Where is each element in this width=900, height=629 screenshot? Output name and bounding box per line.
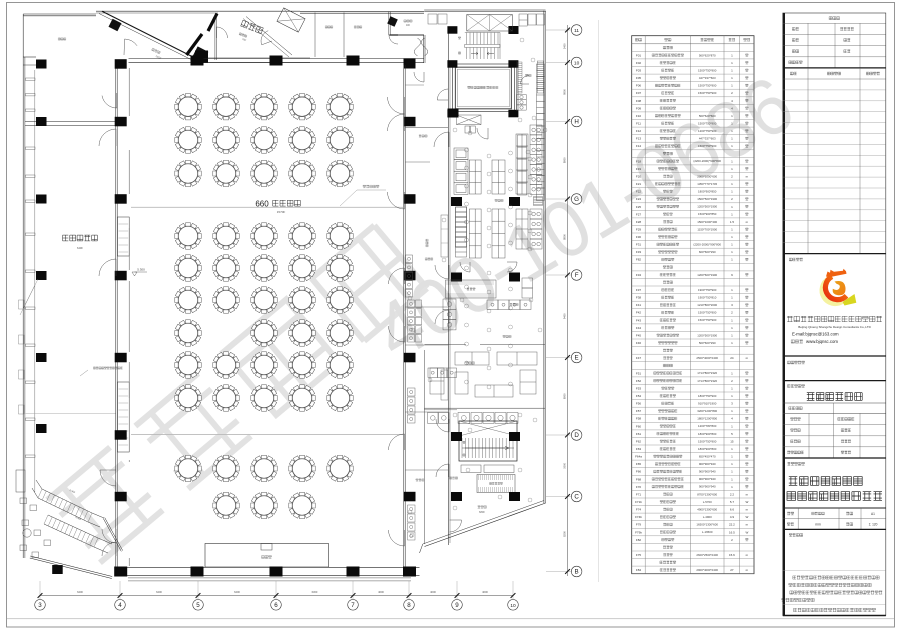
svg-text:1500*750*900: 1500*750*900	[698, 84, 717, 88]
svg-text:Beijing Qineng Shangchu Design: Beijing Qineng Shangchu Design Consultan…	[798, 325, 871, 329]
svg-text:F12: F12	[636, 129, 642, 133]
svg-text:9400: 9400	[562, 313, 566, 319]
svg-text:4600: 4600	[378, 590, 384, 594]
svg-text:F66: F66	[636, 470, 642, 474]
svg-text:910*910*1900: 910*910*1900	[698, 402, 717, 406]
svg-text:(2200-2000)*900*800: (2200-2000)*900*800	[693, 243, 721, 247]
svg-text:500*600*290: 500*600*290	[699, 341, 716, 345]
svg-text:F61: F61	[636, 432, 642, 436]
svg-text:F05: F05	[636, 76, 642, 80]
svg-text:F03: F03	[636, 69, 642, 73]
svg-text:F52: F52	[636, 379, 642, 383]
svg-text:F79b: F79b	[635, 530, 642, 534]
svg-text:A1: A1	[871, 512, 875, 516]
svg-text:F51: F51	[636, 371, 642, 375]
svg-text:4: 4	[118, 602, 122, 609]
svg-text:7: 7	[351, 602, 355, 609]
svg-text:F20: F20	[636, 175, 642, 179]
svg-text:F54: F54	[636, 394, 642, 398]
svg-text:1714*800*2320: 1714*800*2320	[697, 371, 717, 375]
svg-text:F75: F75	[636, 553, 642, 557]
svg-text:F47: F47	[636, 356, 642, 360]
svg-text:F63: F63	[636, 447, 642, 451]
svg-text:1800*900*800: 1800*900*800	[698, 447, 717, 451]
svg-text:G: G	[574, 196, 579, 203]
svg-text:6400: 6400	[234, 590, 240, 594]
svg-text:F62: F62	[636, 439, 642, 443]
svg-text:F19: F19	[636, 167, 642, 171]
svg-text:3: 3	[38, 602, 42, 609]
svg-text:560*620*600: 560*620*600	[699, 114, 716, 118]
svg-text:6400: 6400	[156, 590, 162, 594]
svg-text:D: D	[574, 432, 579, 439]
svg-text:F65: F65	[636, 462, 642, 466]
svg-text:1800*1200*800: 1800*1200*800	[697, 417, 717, 421]
svg-text:F43: F43	[636, 318, 642, 322]
svg-text:H: H	[574, 119, 578, 126]
svg-text:8200: 8200	[563, 531, 567, 537]
svg-text:15: 15	[730, 439, 734, 443]
svg-text:L-4900: L-4900	[703, 515, 712, 519]
svg-text:5: 5	[196, 602, 200, 609]
svg-text:1500*750*900: 1500*750*900	[698, 311, 717, 315]
svg-text:5.7: 5.7	[730, 500, 735, 504]
svg-text:6400: 6400	[77, 590, 83, 594]
svg-text:F22: F22	[636, 190, 642, 194]
svg-text:2000*1000*600: 2000*1000*600	[697, 174, 717, 178]
svg-text:1500*750*900: 1500*750*900	[698, 121, 717, 125]
svg-text:1900*750*810: 1900*750*810	[698, 296, 717, 300]
svg-text:F46: F46	[636, 341, 642, 345]
svg-text:1500*900*850: 1500*900*850	[698, 212, 717, 216]
svg-text:F82: F82	[636, 258, 642, 262]
svg-text:F57: F57	[636, 409, 642, 413]
svg-text:F06: F06	[636, 84, 642, 88]
svg-text:F37: F37	[636, 288, 642, 292]
svg-text:3200*1200*800: 3200*1200*800	[697, 409, 717, 413]
svg-text:900*900*940: 900*900*940	[699, 477, 716, 481]
svg-text:5000: 5000	[563, 462, 567, 468]
svg-text:640F: 640F	[77, 246, 83, 250]
svg-text:F70: F70	[636, 485, 642, 489]
svg-text:1200*500*1900: 1200*500*1900	[697, 205, 717, 209]
svg-text:9: 9	[455, 602, 459, 609]
svg-text:F13: F13	[636, 137, 642, 141]
svg-text:E-mail:bjqnsc@163.com: E-mail:bjqnsc@163.com	[792, 332, 839, 337]
svg-text:mm: mm	[815, 523, 821, 527]
svg-text:F07: F07	[636, 91, 642, 95]
svg-text:F27: F27	[636, 212, 642, 216]
svg-text:F24: F24	[636, 197, 642, 201]
svg-text:1500*500*1900: 1500*500*1900	[697, 197, 717, 201]
svg-text:F41: F41	[636, 303, 642, 307]
svg-text:F74b: F74b	[635, 515, 642, 519]
svg-text:1.5: 1.5	[730, 220, 735, 224]
svg-text:F25: F25	[636, 205, 642, 209]
svg-text:W: W	[745, 515, 748, 519]
svg-text:1500*750*900: 1500*750*900	[698, 439, 717, 443]
svg-text:F30: F30	[636, 235, 642, 239]
svg-text:1500*750*900: 1500*750*900	[698, 68, 717, 72]
svg-text:4.9: 4.9	[730, 515, 735, 519]
svg-text:F38: F38	[636, 296, 642, 300]
svg-text:1210*800*2000: 1210*800*2000	[697, 303, 717, 307]
svg-text:8800: 8800	[563, 234, 567, 240]
svg-text:447*337*603: 447*337*603	[699, 137, 716, 141]
svg-text:4600: 4600	[482, 590, 488, 594]
svg-text:W: W	[745, 530, 748, 534]
svg-text:F60: F60	[636, 424, 642, 428]
svg-text:F: F	[575, 272, 579, 279]
svg-text:F84: F84	[636, 568, 642, 572]
svg-text:9800: 9800	[563, 89, 567, 95]
svg-text:F31: F31	[636, 243, 642, 247]
svg-text:15.6: 15.6	[729, 553, 735, 557]
svg-text:22.2: 22.2	[729, 523, 735, 527]
svg-text:2900*4000*2400: 2900*4000*2400	[696, 568, 718, 572]
svg-text:F56: F56	[636, 402, 642, 406]
svg-text:F10: F10	[636, 114, 642, 118]
svg-text:16500*1300*600: 16500*1300*600	[696, 523, 718, 527]
svg-text:4000: 4000	[430, 590, 436, 594]
svg-text:650*450*470: 650*450*470	[699, 455, 716, 459]
svg-text:F68: F68	[636, 477, 642, 481]
svg-text:F29: F29	[636, 228, 642, 232]
svg-text:16.5: 16.5	[729, 530, 735, 534]
svg-text:F53: F53	[636, 386, 642, 390]
svg-text:6.6: 6.6	[730, 508, 735, 512]
svg-text:1200*600*1900: 1200*600*1900	[697, 273, 717, 277]
svg-text:2500*4000*2400: 2500*4000*2400	[696, 356, 718, 360]
svg-text:24: 24	[730, 356, 734, 360]
svg-text:1714*800*2320: 1714*800*2320	[697, 379, 717, 383]
svg-text:W: W	[745, 500, 748, 504]
svg-text:27: 27	[730, 568, 734, 572]
svg-text:C: C	[574, 494, 579, 501]
svg-text:1: 120: 1: 120	[869, 523, 878, 527]
svg-text:1500*750*900: 1500*750*900	[698, 318, 717, 322]
svg-text:F82: F82	[636, 538, 642, 542]
svg-text:1500*750*900: 1500*750*900	[698, 91, 717, 95]
svg-text:F34: F34	[636, 273, 642, 277]
svg-text:F71: F71	[636, 492, 642, 496]
svg-text:10: 10	[574, 61, 580, 67]
svg-text:F11: F11	[636, 122, 641, 126]
svg-text:5400: 5400	[562, 43, 566, 49]
svg-text:F09: F09	[636, 106, 642, 110]
svg-text:F44: F44	[636, 326, 642, 330]
svg-text:1500*1000*400: 1500*1000*400	[697, 220, 717, 224]
svg-text:2.2: 2.2	[730, 492, 735, 496]
svg-text:6300: 6300	[312, 590, 318, 594]
svg-text:F58: F58	[636, 417, 642, 421]
svg-text:F01: F01	[636, 53, 642, 57]
svg-text:600*600*290: 600*600*290	[699, 250, 716, 254]
svg-text:F14: F14	[636, 144, 642, 148]
svg-text:B: B	[575, 569, 579, 576]
svg-text:F42: F42	[636, 311, 642, 315]
svg-text:560*620*870: 560*620*870	[699, 53, 716, 57]
svg-text:6800: 6800	[562, 393, 566, 399]
svg-text:F02: F02	[636, 61, 642, 65]
svg-text:8700*1300*600: 8700*1300*600	[697, 492, 717, 496]
svg-text:447*337*603: 447*337*603	[699, 76, 716, 80]
svg-text:680F: 680F	[479, 510, 485, 514]
svg-text:1900*750*900: 1900*750*900	[698, 288, 717, 292]
svg-text:F21: F21	[636, 182, 642, 186]
svg-text:F45: F45	[636, 333, 642, 337]
svg-text:1500*750*900: 1500*750*900	[698, 144, 717, 148]
svg-text:F08: F08	[636, 99, 642, 103]
svg-text:11: 11	[574, 28, 579, 34]
svg-text:L-16500: L-16500	[702, 530, 713, 534]
svg-text:F79: F79	[636, 523, 642, 527]
svg-text:40F: 40F	[406, 24, 411, 27]
svg-text:1150*700*1900: 1150*700*1900	[697, 227, 717, 231]
svg-text:F64a: F64a	[635, 455, 642, 459]
svg-text:www.bjqnsc.com: www.bjqnsc.com	[806, 339, 838, 344]
svg-text:1200*780*800: 1200*780*800	[698, 424, 717, 428]
svg-text:2600*2500*2400: 2600*2500*2400	[696, 553, 718, 557]
svg-text:1200*500*1900: 1200*500*1900	[697, 333, 717, 337]
svg-text:F28: F28	[636, 220, 642, 224]
svg-text:8800: 8800	[562, 157, 566, 163]
svg-text:F18: F18	[636, 159, 642, 163]
svg-text:900*900*940: 900*900*940	[699, 462, 716, 466]
svg-text:L-5700: L-5700	[703, 500, 712, 504]
svg-text:F33: F33	[636, 250, 642, 254]
svg-text:10: 10	[510, 603, 516, 609]
svg-text:1800*900*850: 1800*900*850	[698, 190, 717, 194]
svg-text:6: 6	[274, 602, 278, 609]
svg-text:1350*770*1745: 1350*770*1745	[697, 182, 717, 186]
svg-text:5.300: 5.300	[137, 268, 145, 272]
svg-text:F71b: F71b	[635, 500, 642, 504]
svg-text:900*900*940: 900*900*940	[699, 485, 716, 489]
svg-text:(2200-2000)*900*800: (2200-2000)*900*800	[693, 159, 721, 163]
svg-text:1570F: 1570F	[277, 210, 286, 214]
svg-text:E: E	[575, 355, 579, 362]
svg-text:900*900*940: 900*900*940	[699, 470, 716, 474]
svg-text:1200*750*900: 1200*750*900	[698, 129, 717, 133]
svg-text:4900*1300*600: 4900*1300*600	[697, 508, 717, 512]
svg-text:1800*900*800: 1800*900*800	[698, 432, 717, 436]
svg-text:1800*750*900: 1800*750*900	[698, 394, 717, 398]
svg-text:8: 8	[407, 602, 411, 609]
svg-text:F74: F74	[636, 508, 642, 512]
